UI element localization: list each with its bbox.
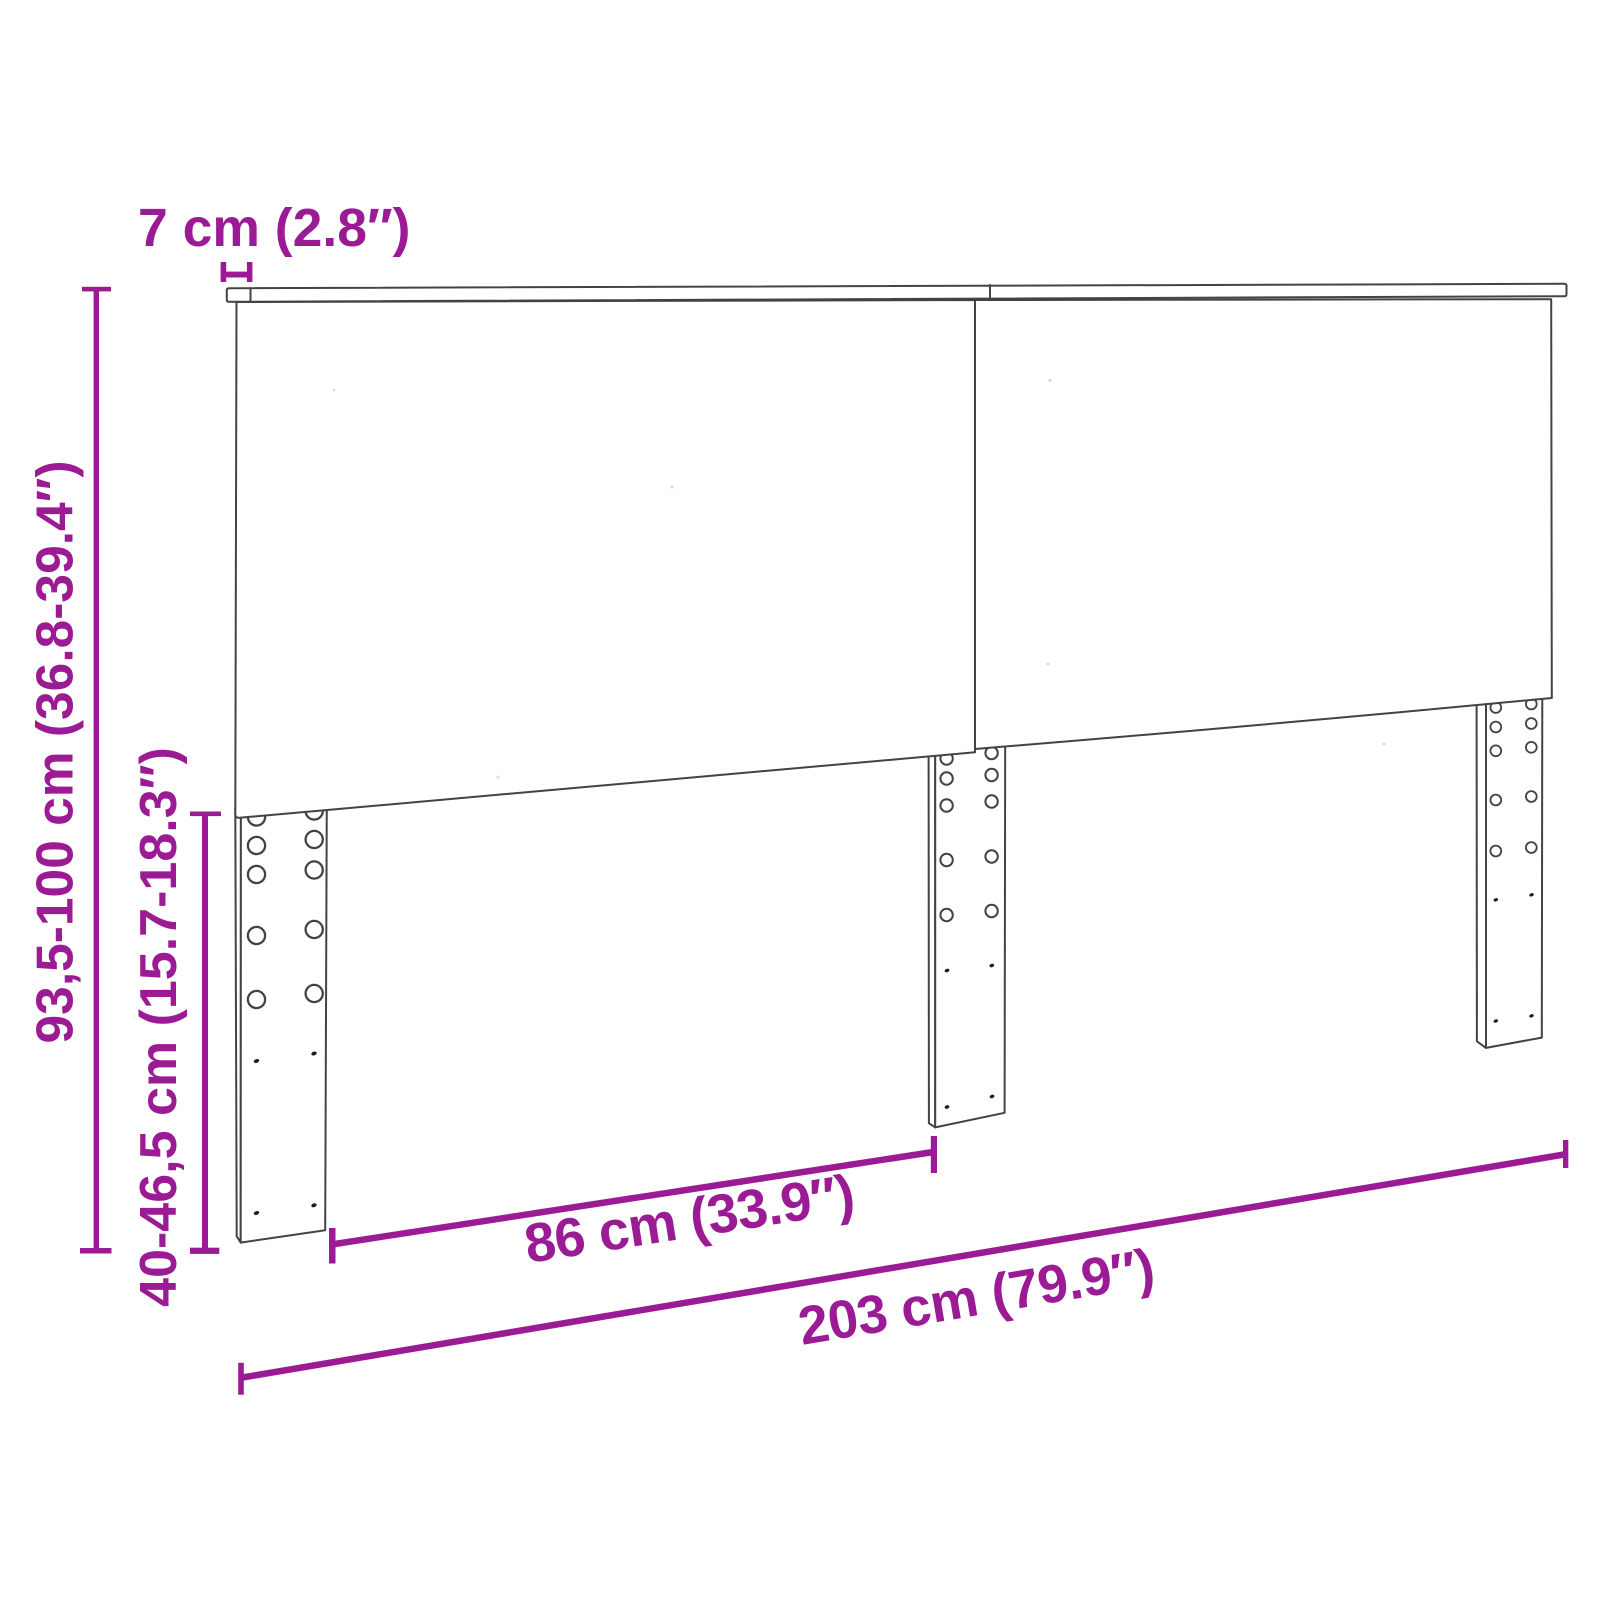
svg-text:7 cm (2.8″): 7 cm (2.8″) xyxy=(138,199,410,258)
svg-text:93,5-100 cm (36.8-39.4″): 93,5-100 cm (36.8-39.4″) xyxy=(26,461,84,1044)
svg-text:40-46,5 cm (15.7-18.3″): 40-46,5 cm (15.7-18.3″) xyxy=(130,747,188,1307)
